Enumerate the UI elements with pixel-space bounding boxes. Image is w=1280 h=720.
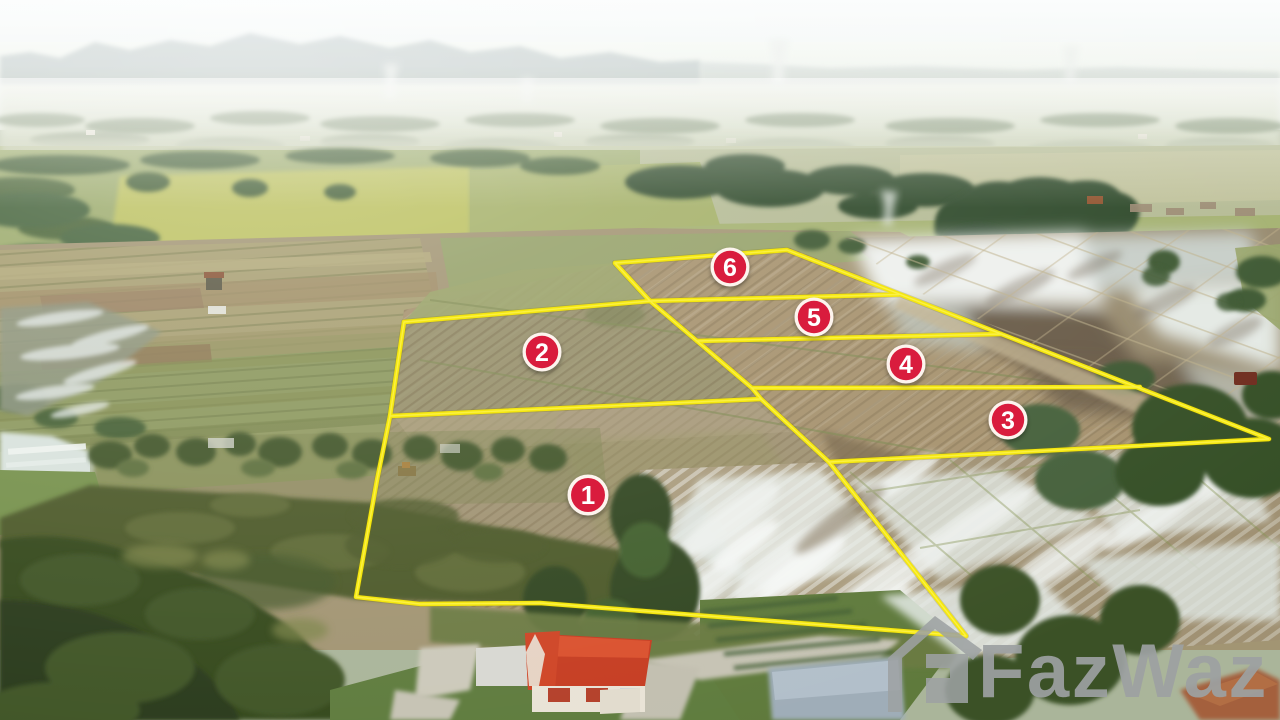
- svg-text:2: 2: [535, 339, 549, 367]
- svg-text:5: 5: [807, 304, 821, 332]
- svg-text:1: 1: [581, 480, 595, 510]
- svg-text:3: 3: [1001, 407, 1015, 435]
- svg-text:4: 4: [899, 351, 913, 379]
- svg-text:6: 6: [723, 254, 737, 282]
- svg-text:FazWaz: FazWaz: [978, 629, 1269, 714]
